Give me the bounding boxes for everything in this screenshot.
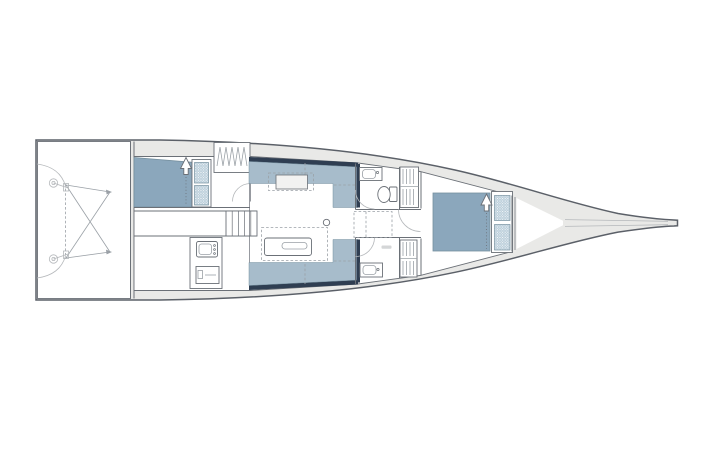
forward-pillow-2 bbox=[495, 225, 511, 251]
bottom-settee-side-band bbox=[357, 240, 361, 283]
galley bbox=[190, 238, 222, 289]
salon-table bbox=[265, 238, 312, 256]
transom-garage bbox=[37, 142, 134, 299]
companionway bbox=[226, 211, 257, 236]
yacht-floor-plan bbox=[0, 0, 712, 456]
floor-plan-page bbox=[0, 0, 712, 456]
forward-pillow-1 bbox=[495, 196, 511, 221]
forward-cabin-bed bbox=[433, 193, 490, 251]
aft-pillow-2 bbox=[195, 186, 209, 206]
mast-post bbox=[323, 219, 329, 225]
sideboard bbox=[276, 175, 308, 189]
toilet-bowl bbox=[378, 187, 390, 203]
transom-garage-floor bbox=[38, 142, 131, 299]
forward-cabin bbox=[433, 192, 515, 253]
stairs-box bbox=[226, 211, 257, 236]
illegible-label bbox=[382, 246, 392, 249]
aft-pillow-1 bbox=[195, 163, 209, 184]
